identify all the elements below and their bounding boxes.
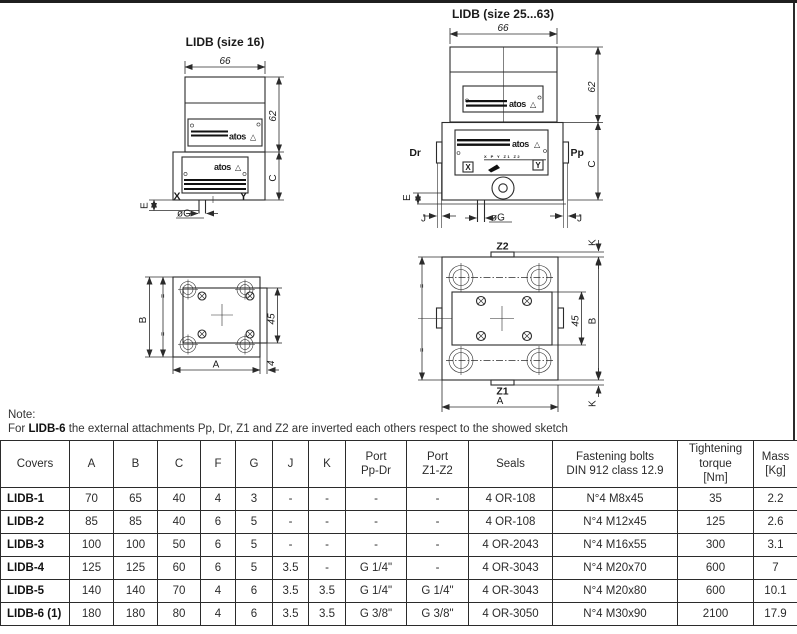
dim-62-label: 62 xyxy=(268,110,279,122)
row-cover-label: LIDB-6 (1) xyxy=(1,603,70,626)
dim-4-label: 4 xyxy=(266,360,277,366)
atos-logo: atos xyxy=(509,99,526,109)
equal-mark: = xyxy=(161,332,168,336)
table-cell: 2.6 xyxy=(754,511,797,534)
table-cell: 6 xyxy=(236,580,273,603)
table-cell: - xyxy=(273,534,309,557)
table-cell: - xyxy=(346,488,407,511)
dim-45-label: 45 xyxy=(267,313,278,325)
table-row: LIDB-285854065----4 OR-108N°4 M12x451252… xyxy=(1,511,797,534)
table-cell: 3 xyxy=(236,488,273,511)
table-cell: N°4 M30x90 xyxy=(553,603,678,626)
table-cell: 4 OR-3043 xyxy=(469,580,553,603)
port-dr-label: Dr xyxy=(409,147,421,159)
table-cell: 10.1 xyxy=(754,580,797,603)
note-label: Note: xyxy=(8,409,36,421)
table-cell: - xyxy=(309,488,346,511)
dim-e-label: E xyxy=(402,194,413,201)
row-cover-label: LIDB-4 xyxy=(1,557,70,580)
table-row: LIDB-31001005065----4 OR-2043N°4 M16x553… xyxy=(1,534,797,557)
note-suffix: the external attachments Pp, Dr, Z1 and … xyxy=(66,423,568,435)
table-row: LIDB-6 (1)18018080463.53.5G 3/8"G 3/8"4 … xyxy=(1,603,797,626)
column-header: Mass [Kg] xyxy=(754,441,797,488)
ports-row-label: X P Y Z1 Z2 xyxy=(484,154,521,159)
table-cell: 300 xyxy=(678,534,754,557)
table-cell: 3.5 xyxy=(273,603,309,626)
table-cell: 2100 xyxy=(678,603,754,626)
table-cell: - xyxy=(346,534,407,557)
table-header-row: CoversABCFGJKPort Pp-DrPort Z1-Z2SealsFa… xyxy=(1,441,797,488)
table-cell: 125 xyxy=(114,557,158,580)
drawing-title-size2563: LIDB (size 25...63) xyxy=(452,7,554,21)
table-cell: 40 xyxy=(158,511,201,534)
table-cell: N°4 M16x55 xyxy=(553,534,678,557)
table-cell: 6 xyxy=(201,511,236,534)
dim-66-label: 66 xyxy=(219,56,231,67)
table-cell: 4 OR-108 xyxy=(469,488,553,511)
dimension-table: CoversABCFGJKPort Pp-DrPort Z1-Z2SealsFa… xyxy=(0,440,797,626)
note-text: For LIDB-6 the external attachments Pp, … xyxy=(8,423,568,435)
dim-c-label: C xyxy=(268,174,279,181)
boxed-y-label: Y xyxy=(535,161,541,170)
atos-triangle-icon: △ xyxy=(235,163,242,172)
technical-drawings: LIDB (size 16) 66 atos △ atos △ X Y 62 C… xyxy=(0,0,797,440)
table-cell: 180 xyxy=(70,603,114,626)
column-header: Seals xyxy=(469,441,553,488)
table-row: LIDB-412512560653.5-G 1/4"-4 OR-3043N°4 … xyxy=(1,557,797,580)
table-cell: G 1/4" xyxy=(346,580,407,603)
column-header: J xyxy=(273,441,309,488)
dim-k-label: K xyxy=(588,400,599,407)
port-pp-label: Pp xyxy=(571,147,584,159)
table-cell: 4 xyxy=(201,580,236,603)
table-cell: 4 OR-3043 xyxy=(469,557,553,580)
table-cell: 5 xyxy=(236,511,273,534)
column-header: Covers xyxy=(1,441,70,488)
atos-triangle-icon: △ xyxy=(250,133,257,142)
table-cell: - xyxy=(407,557,469,580)
table-cell: G 1/4" xyxy=(407,580,469,603)
table-cell: 2.2 xyxy=(754,488,797,511)
table-cell: 125 xyxy=(70,557,114,580)
bottom-view-size2563: Z2 Z1 = = xyxy=(418,239,604,412)
table-cell: 4 OR-3050 xyxy=(469,603,553,626)
table-cell: 140 xyxy=(70,580,114,603)
dim-e-label: E xyxy=(140,202,151,209)
table-cell: N°4 M12x45 xyxy=(553,511,678,534)
column-header: G xyxy=(236,441,273,488)
column-header: K xyxy=(309,441,346,488)
datasheet-page: { "drawings": { "front16_title": "LIDB (… xyxy=(0,0,797,634)
table-cell: 4 xyxy=(201,488,236,511)
column-header: Port Z1-Z2 xyxy=(407,441,469,488)
dim-b-label: B xyxy=(588,317,599,324)
table-cell: N°4 M20x70 xyxy=(553,557,678,580)
table-cell: 6 xyxy=(201,534,236,557)
table-cell: 140 xyxy=(114,580,158,603)
table-cell: 3.5 xyxy=(273,557,309,580)
table-cell: 7 xyxy=(754,557,797,580)
table-cell: 80 xyxy=(158,603,201,626)
table-cell: 100 xyxy=(114,534,158,557)
note-prefix: For xyxy=(8,423,28,435)
table-cell: - xyxy=(346,511,407,534)
table-cell: - xyxy=(407,488,469,511)
column-header: C xyxy=(158,441,201,488)
table-cell: G 1/4" xyxy=(346,557,407,580)
dim-a-label: A xyxy=(497,396,504,407)
front-view-size2563: LIDB (size 25...63) 66 atos △ 62 C Dr Pp… xyxy=(402,7,603,228)
equal-mark: = xyxy=(420,348,427,352)
atos-logo: atos xyxy=(214,162,231,172)
table-cell: 5 xyxy=(236,534,273,557)
table-cell: 6 xyxy=(236,603,273,626)
row-cover-label: LIDB-1 xyxy=(1,488,70,511)
boxed-x-label: X xyxy=(465,163,471,172)
table-cell: 3.5 xyxy=(309,603,346,626)
port-z2-label: Z2 xyxy=(496,241,508,253)
table-cell: 40 xyxy=(158,488,201,511)
dim-66-label: 66 xyxy=(497,23,509,34)
table-cell: 60 xyxy=(158,557,201,580)
dim-j-label: J xyxy=(577,214,582,225)
table-cell: 600 xyxy=(678,557,754,580)
atos-triangle-icon: △ xyxy=(534,140,541,149)
port-x-label: X xyxy=(174,191,181,203)
table-cell: 3.5 xyxy=(309,580,346,603)
dim-b-label: B xyxy=(138,316,149,323)
drawing-title-size16: LIDB (size 16) xyxy=(186,35,265,49)
table-row: LIDB-514014070463.53.5G 1/4"G 1/4"4 OR-3… xyxy=(1,580,797,603)
table-cell: 100 xyxy=(70,534,114,557)
column-header: Fastening bolts DIN 912 class 12.9 xyxy=(553,441,678,488)
dim-62-label: 62 xyxy=(587,81,598,93)
atos-triangle-icon: △ xyxy=(530,100,537,109)
table-cell: 70 xyxy=(158,580,201,603)
port-y-label: Y xyxy=(240,191,247,203)
table-cell: N°4 M20x80 xyxy=(553,580,678,603)
table-cell: 3.1 xyxy=(754,534,797,557)
row-cover-label: LIDB-3 xyxy=(1,534,70,557)
front-view-size16: LIDB (size 16) 66 atos △ atos △ X Y 62 C… xyxy=(140,35,285,220)
column-header: F xyxy=(201,441,236,488)
table-cell: 4 xyxy=(201,603,236,626)
note-bold-model: LIDB-6 xyxy=(28,423,65,435)
bottom-view-size16: B = = 45 A 4 xyxy=(138,277,282,374)
column-header: Port Pp-Dr xyxy=(346,441,407,488)
table-cell: - xyxy=(273,511,309,534)
row-cover-label: LIDB-2 xyxy=(1,511,70,534)
dim-j-label: J xyxy=(421,214,426,225)
dim-k-label: K xyxy=(588,239,599,246)
table-cell: 125 xyxy=(678,511,754,534)
table-cell: 17.9 xyxy=(754,603,797,626)
table-cell: 6 xyxy=(201,557,236,580)
counterbore-holes xyxy=(449,263,551,375)
table-cell: - xyxy=(407,511,469,534)
column-header: B xyxy=(114,441,158,488)
table-cell: 600 xyxy=(678,580,754,603)
table-cell: - xyxy=(309,557,346,580)
atos-logo: atos xyxy=(229,132,246,142)
table-cell: 5 xyxy=(236,557,273,580)
table-cell: N°4 M8x45 xyxy=(553,488,678,511)
table-cell: 65 xyxy=(114,488,158,511)
table-cell: - xyxy=(407,534,469,557)
column-header: A xyxy=(70,441,114,488)
table-cell: 180 xyxy=(114,603,158,626)
table-cell: 3.5 xyxy=(273,580,309,603)
table-cell: - xyxy=(309,534,346,557)
equal-mark: = xyxy=(420,284,427,288)
table-cell: G 3/8" xyxy=(407,603,469,626)
table-cell: 4 OR-2043 xyxy=(469,534,553,557)
dim-c-label: C xyxy=(587,160,598,167)
table-cell: 70 xyxy=(70,488,114,511)
table-body: LIDB-170654043----4 OR-108N°4 M8x45352.2… xyxy=(1,488,797,626)
table-cell: 85 xyxy=(114,511,158,534)
table-cell: - xyxy=(309,511,346,534)
table-cell: 85 xyxy=(70,511,114,534)
table-cell: 50 xyxy=(158,534,201,557)
equal-mark: = xyxy=(161,294,168,298)
table-cell: G 3/8" xyxy=(346,603,407,626)
table-head: CoversABCFGJKPort Pp-DrPort Z1-Z2SealsFa… xyxy=(1,441,797,488)
row-cover-label: LIDB-5 xyxy=(1,580,70,603)
table-cell: 4 OR-108 xyxy=(469,511,553,534)
atos-logo: atos xyxy=(512,139,529,149)
dim-45-label: 45 xyxy=(571,315,582,327)
table-row: LIDB-170654043----4 OR-108N°4 M8x45352.2 xyxy=(1,488,797,511)
table-cell: - xyxy=(273,488,309,511)
table-cell: 35 xyxy=(678,488,754,511)
dim-a-label: A xyxy=(213,360,220,371)
valve-symbol-icon xyxy=(488,165,500,173)
column-header: Tightening torque [Nm] xyxy=(678,441,754,488)
